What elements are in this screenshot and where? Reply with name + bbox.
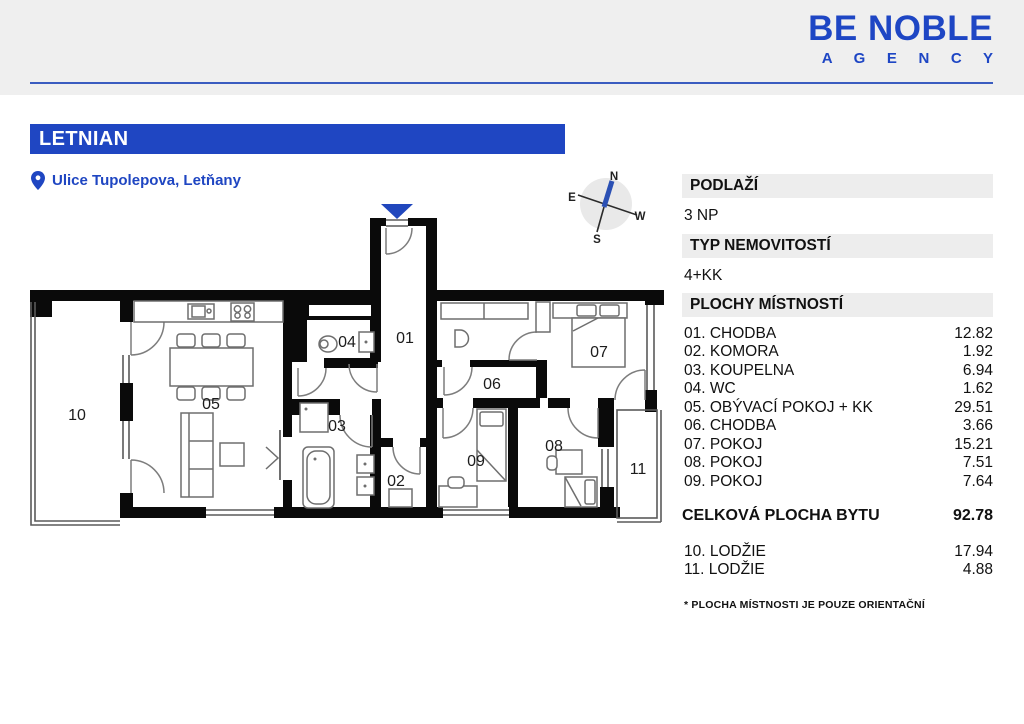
type-value: 4+KK <box>684 267 722 285</box>
table-row: 04. WC1.62 <box>682 380 993 398</box>
room-label-02: 02 <box>387 473 405 490</box>
total-area-row: CELKOVÁ PLOCHA BYTU 92.78 <box>682 507 993 525</box>
room-name: 10. LODŽIE <box>682 543 766 561</box>
table-row: 01. CHODBA12.82 <box>682 325 993 343</box>
room-name: 06. CHODBA <box>682 417 776 435</box>
room-area-table: 01. CHODBA12.82 02. KOMORA1.92 03. KOUPE… <box>682 325 993 491</box>
desk-09 <box>439 486 477 507</box>
room-name: 08. POKOJ <box>682 454 762 472</box>
floor-section-header: PODLAŽÍ <box>682 174 993 198</box>
table-row: 08. POKOJ7.51 <box>682 454 993 472</box>
room-label-07: 07 <box>590 344 608 361</box>
bedroom-closet <box>536 302 550 332</box>
room-label-04: 04 <box>338 334 356 351</box>
room-name: 11. LODŽIE <box>682 561 765 579</box>
room-label-09: 09 <box>467 453 485 470</box>
room-area: 4.88 <box>963 561 993 579</box>
compass-s: S <box>593 234 601 246</box>
dining-table <box>170 348 253 386</box>
compass-rose: N E W S <box>568 171 645 246</box>
coffee-table <box>220 443 244 466</box>
room-label-06: 06 <box>483 376 501 393</box>
room-name: 05. OBÝVACÍ POKOJ + KK <box>682 399 873 417</box>
entrance-arrow-icon <box>381 204 413 219</box>
table-row: 10. LODŽIE17.94 <box>682 543 993 561</box>
table-row: 07. POKOJ15.21 <box>682 436 993 454</box>
compass-w: W <box>635 211 646 223</box>
table-row: 02. KOMORA1.92 <box>682 343 993 361</box>
room-area: 1.62 <box>963 380 993 398</box>
areas-section-header: PLOCHY MÍSTNOSTÍ <box>682 293 993 317</box>
balcony-table: 10. LODŽIE17.94 11. LODŽIE4.88 <box>682 543 993 580</box>
compass-n: N <box>610 171 618 183</box>
room-name: 01. CHODBA <box>682 325 776 343</box>
room-name: 03. KOUPELNA <box>682 362 794 380</box>
table-row: 05. OBÝVACÍ POKOJ + KK29.51 <box>682 399 993 417</box>
room-area: 29.51 <box>954 399 993 417</box>
room-label-03: 03 <box>328 418 346 435</box>
floorplan-flyer-page: { "colors":{ "brand_blue":"#1f46c2","log… <box>0 0 1024 724</box>
type-section-header: TYP NEMOVITOSTÍ <box>682 234 993 258</box>
room-label-05: 05 <box>202 396 220 413</box>
room-area: 7.64 <box>963 473 993 491</box>
room-name: 04. WC <box>682 380 736 398</box>
room-label-08: 08 <box>545 438 563 455</box>
table-row: 06. CHODBA3.66 <box>682 417 993 435</box>
room-name: 09. POKOJ <box>682 473 762 491</box>
table-row: 03. KOUPELNA6.94 <box>682 362 993 380</box>
room-area: 1.92 <box>963 343 993 361</box>
total-value: 92.78 <box>953 507 993 525</box>
room-area: 12.82 <box>954 325 993 343</box>
room-area: 7.51 <box>963 454 993 472</box>
disclaimer-note: * PLOCHA MÍSTNOSTI JE POUZE ORIENTAČNÍ <box>684 599 925 611</box>
room-area: 6.94 <box>963 362 993 380</box>
compass-e: E <box>568 192 576 204</box>
room-name: 07. POKOJ <box>682 436 762 454</box>
sofa <box>181 413 213 497</box>
room-label-11: 11 <box>630 461 647 478</box>
total-label: CELKOVÁ PLOCHA BYTU <box>682 507 880 525</box>
table-row: 11. LODŽIE4.88 <box>682 561 993 579</box>
table-row: 09. POKOJ7.64 <box>682 473 993 491</box>
room-area: 17.94 <box>954 543 993 561</box>
storage-shelf <box>389 489 412 507</box>
floor-value: 3 NP <box>684 207 718 225</box>
room-area: 3.66 <box>963 417 993 435</box>
room-label-10: 10 <box>68 407 86 424</box>
room-label-01: 01 <box>396 330 414 347</box>
room-name: 02. KOMORA <box>682 343 779 361</box>
room-area: 15.21 <box>954 436 993 454</box>
washing-machine-icon <box>300 403 328 432</box>
